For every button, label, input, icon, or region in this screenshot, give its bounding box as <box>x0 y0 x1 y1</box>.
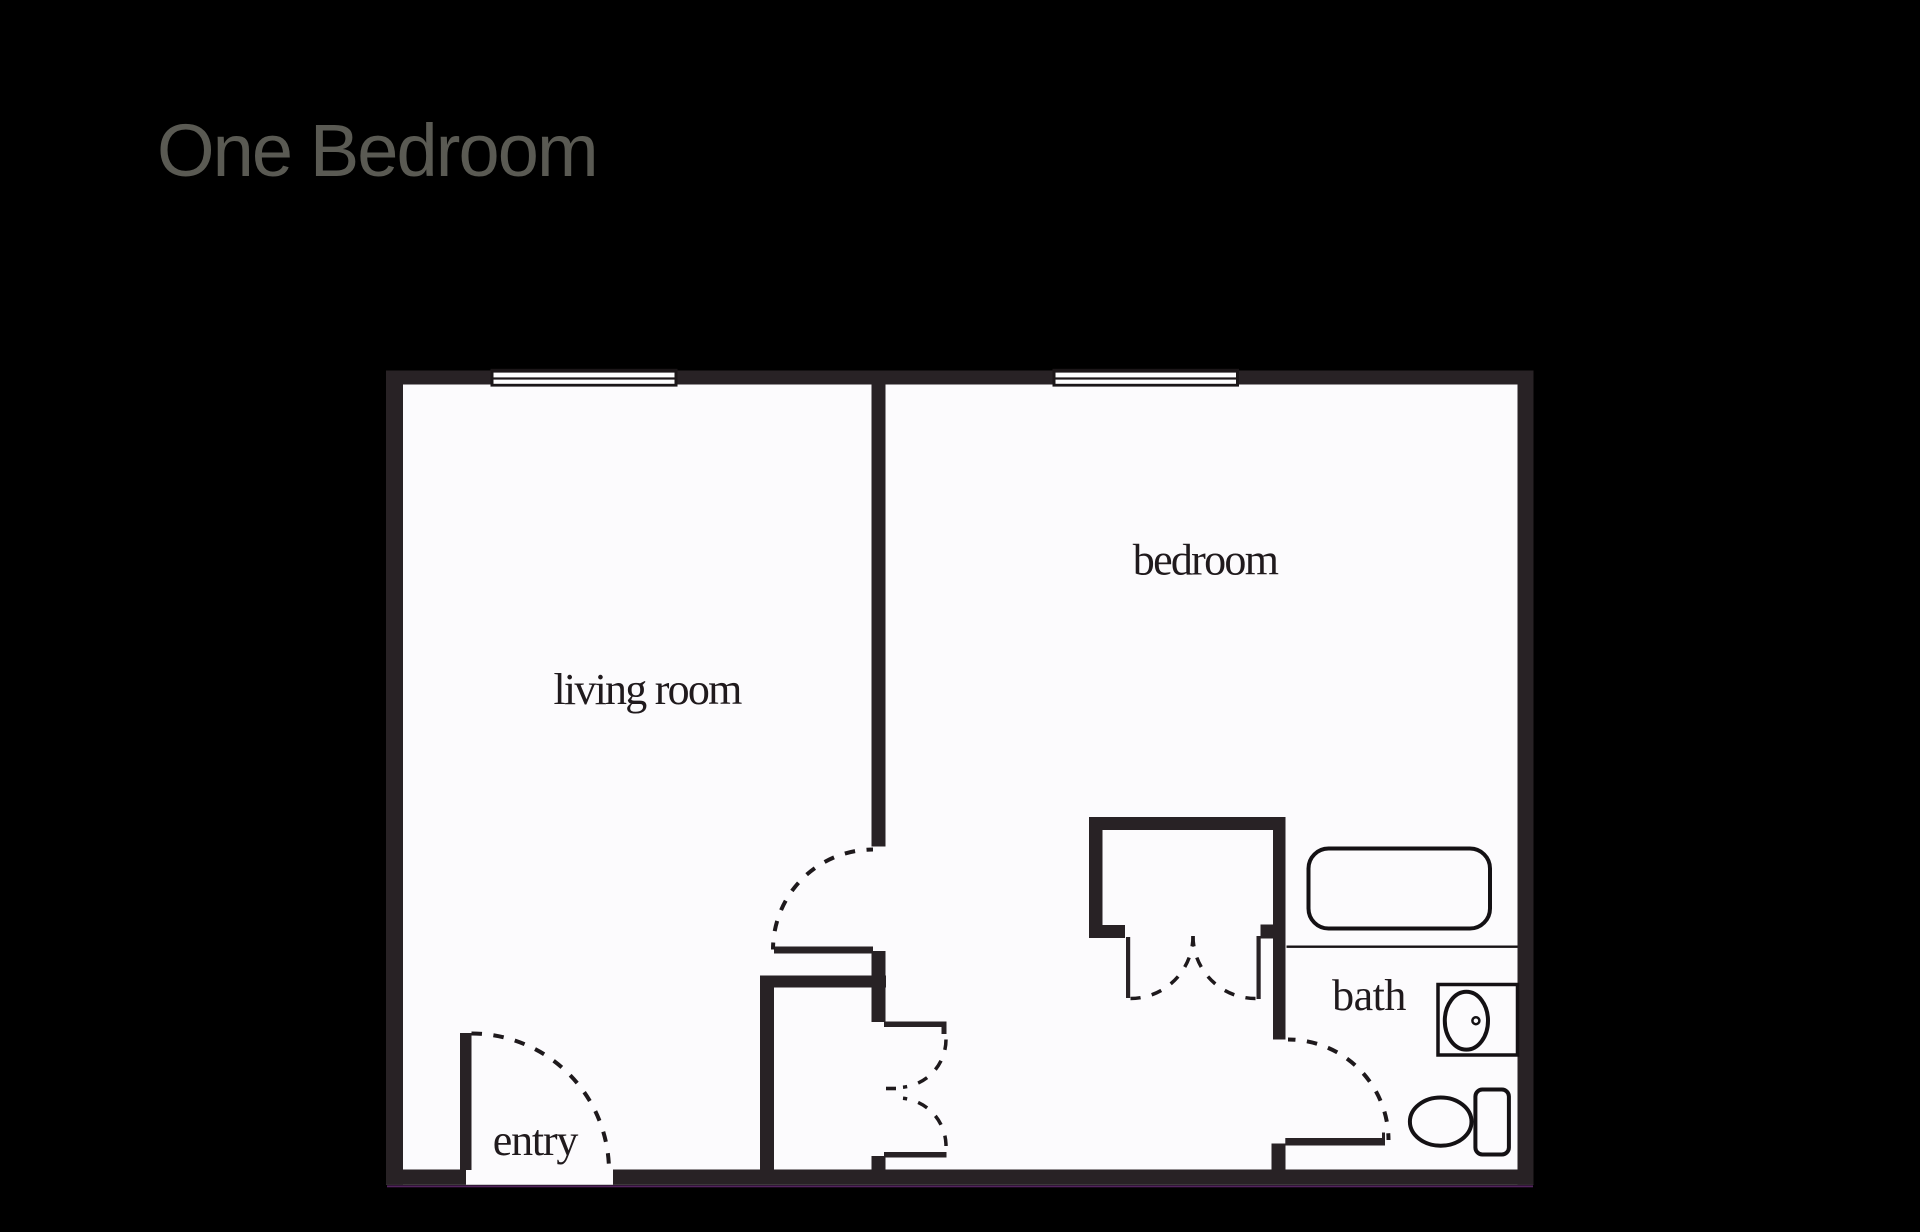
svg-text:entry: entry <box>493 1116 579 1165</box>
svg-text:bedroom: bedroom <box>1133 536 1279 585</box>
svg-text:One Bedroom: One Bedroom <box>157 109 597 192</box>
svg-text:living room: living room <box>553 665 742 714</box>
svg-text:bath: bath <box>1332 971 1406 1020</box>
